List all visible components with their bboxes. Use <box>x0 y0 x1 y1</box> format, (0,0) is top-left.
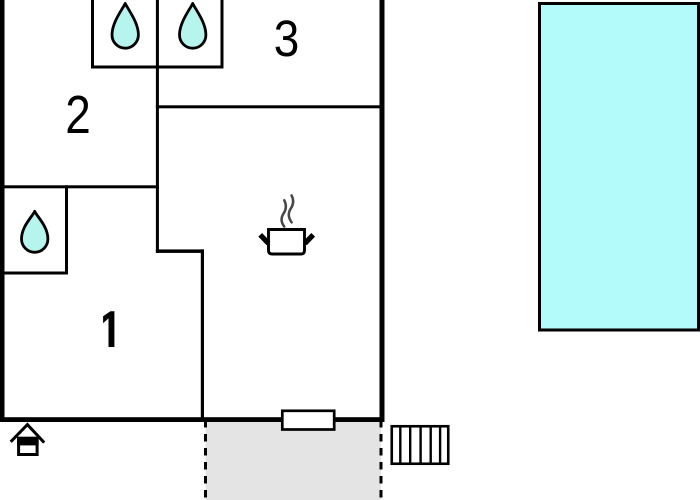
svg-text:2: 2 <box>65 84 91 144</box>
svg-text:3: 3 <box>274 11 300 68</box>
